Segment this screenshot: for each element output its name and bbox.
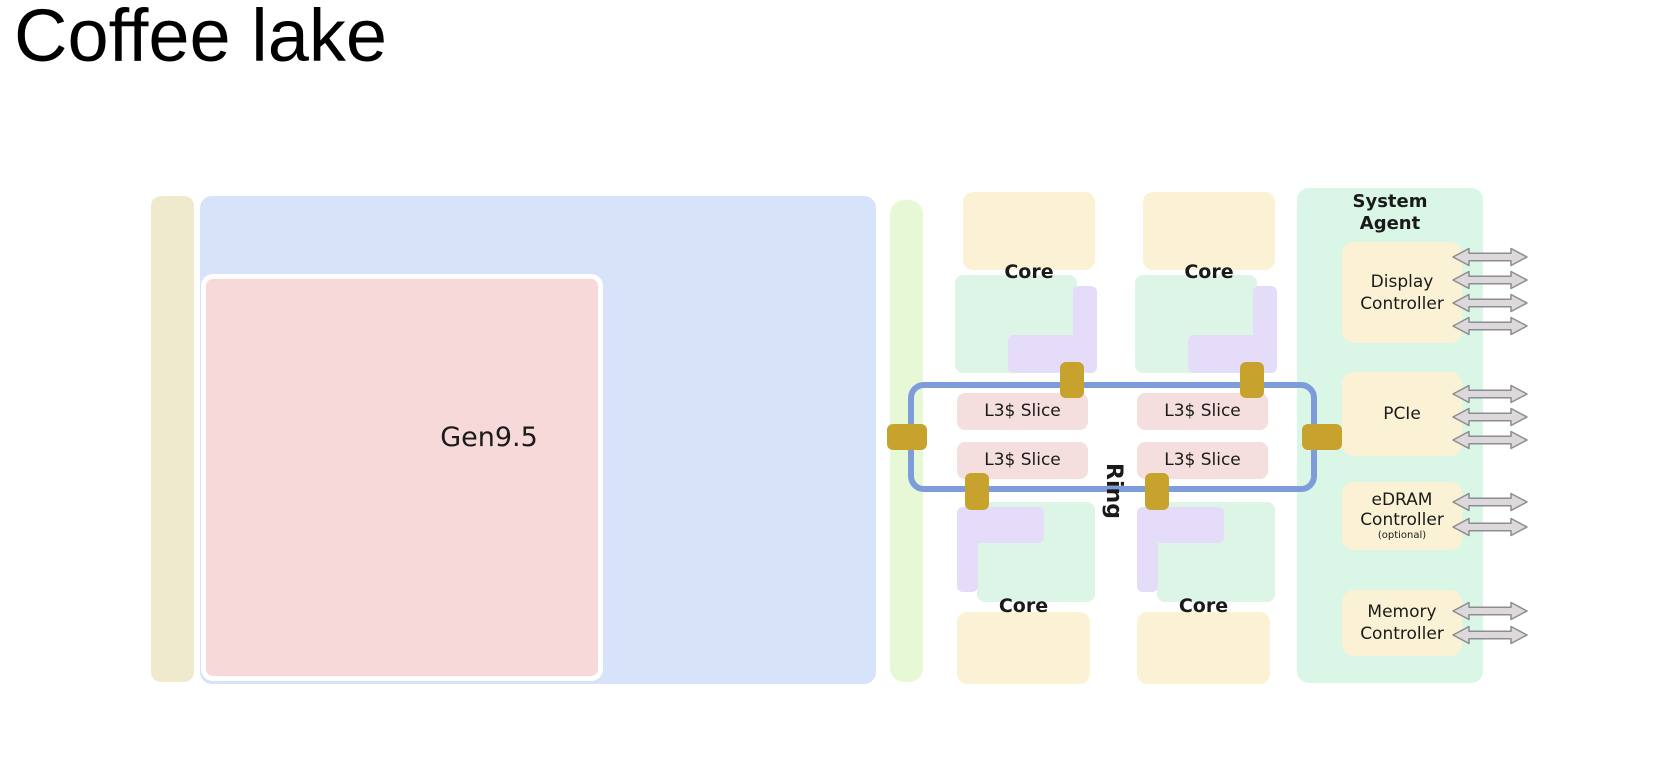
core-uncore-l-vertical xyxy=(957,507,978,592)
bidirectional-arrow-icon xyxy=(1452,316,1528,336)
core-block-top-right xyxy=(1143,192,1275,270)
edram-controller-arrows xyxy=(1452,492,1528,537)
bidirectional-arrow-icon xyxy=(1452,430,1528,450)
core-label-top-left: Core xyxy=(963,262,1095,282)
display-controller-arrows xyxy=(1452,247,1528,336)
display-controller-label-line2: Controller xyxy=(1360,293,1444,315)
core-uncore-l-vertical xyxy=(1137,507,1158,592)
system-agent-title-line1: System xyxy=(1297,191,1483,213)
ring-stop-connector xyxy=(887,424,927,450)
core-block-bottom-left xyxy=(957,612,1090,684)
bidirectional-arrow-icon xyxy=(1452,270,1528,290)
page-title: Coffee lake xyxy=(14,0,387,78)
bidirectional-arrow-icon xyxy=(1452,601,1528,621)
core-label-bottom-right: Core xyxy=(1137,596,1270,616)
edram-optional-note: (optional) xyxy=(1378,530,1426,542)
l3-slice-block: L3$ Slice xyxy=(957,393,1088,430)
display-controller-block: Display Controller xyxy=(1342,242,1462,343)
ring-stop-connector xyxy=(1240,362,1264,398)
bidirectional-arrow-icon xyxy=(1452,407,1528,427)
system-agent-title-line2: Agent xyxy=(1297,213,1483,235)
bidirectional-arrow-icon xyxy=(1452,384,1528,404)
core-label-bottom-left: Core xyxy=(957,596,1090,616)
bidirectional-arrow-icon xyxy=(1452,517,1528,537)
system-agent-title: System Agent xyxy=(1297,191,1483,235)
core-label-top-right: Core xyxy=(1143,262,1275,282)
bidirectional-arrow-icon xyxy=(1452,247,1528,267)
ring-stop-connector xyxy=(1145,473,1169,510)
bidirectional-arrow-icon xyxy=(1452,492,1528,512)
ring-stop-connector xyxy=(965,473,989,510)
pcie-label: PCIe xyxy=(1383,403,1421,425)
ring-stop-connector xyxy=(1060,362,1084,398)
core-block-bottom-right xyxy=(1137,612,1270,684)
l3-slice-block: L3$ Slice xyxy=(1137,393,1268,430)
pcie-block: PCIe xyxy=(1342,372,1462,456)
memory-controller-arrows xyxy=(1452,601,1528,645)
bidirectional-arrow-icon xyxy=(1452,293,1528,313)
pcie-arrows xyxy=(1452,384,1528,450)
memory-label-line2: Controller xyxy=(1360,623,1444,645)
left-edge-strip xyxy=(151,196,194,682)
ring-label: Ring xyxy=(1101,451,1125,531)
edram-label-line1: eDRAM xyxy=(1372,490,1433,510)
core-block-top-left xyxy=(963,192,1095,270)
memory-label-line1: Memory xyxy=(1367,601,1436,623)
edram-controller-block: eDRAM Controller (optional) xyxy=(1342,482,1462,550)
memory-controller-block: Memory Controller xyxy=(1342,590,1462,656)
bidirectional-arrow-icon xyxy=(1452,625,1528,645)
edram-label-line2: Controller xyxy=(1360,510,1444,530)
display-controller-label-line1: Display xyxy=(1371,271,1434,293)
gen95-gpu-block xyxy=(201,274,603,681)
ring-stop-connector xyxy=(1302,424,1342,450)
gen95-label: Gen9.5 xyxy=(389,423,589,453)
